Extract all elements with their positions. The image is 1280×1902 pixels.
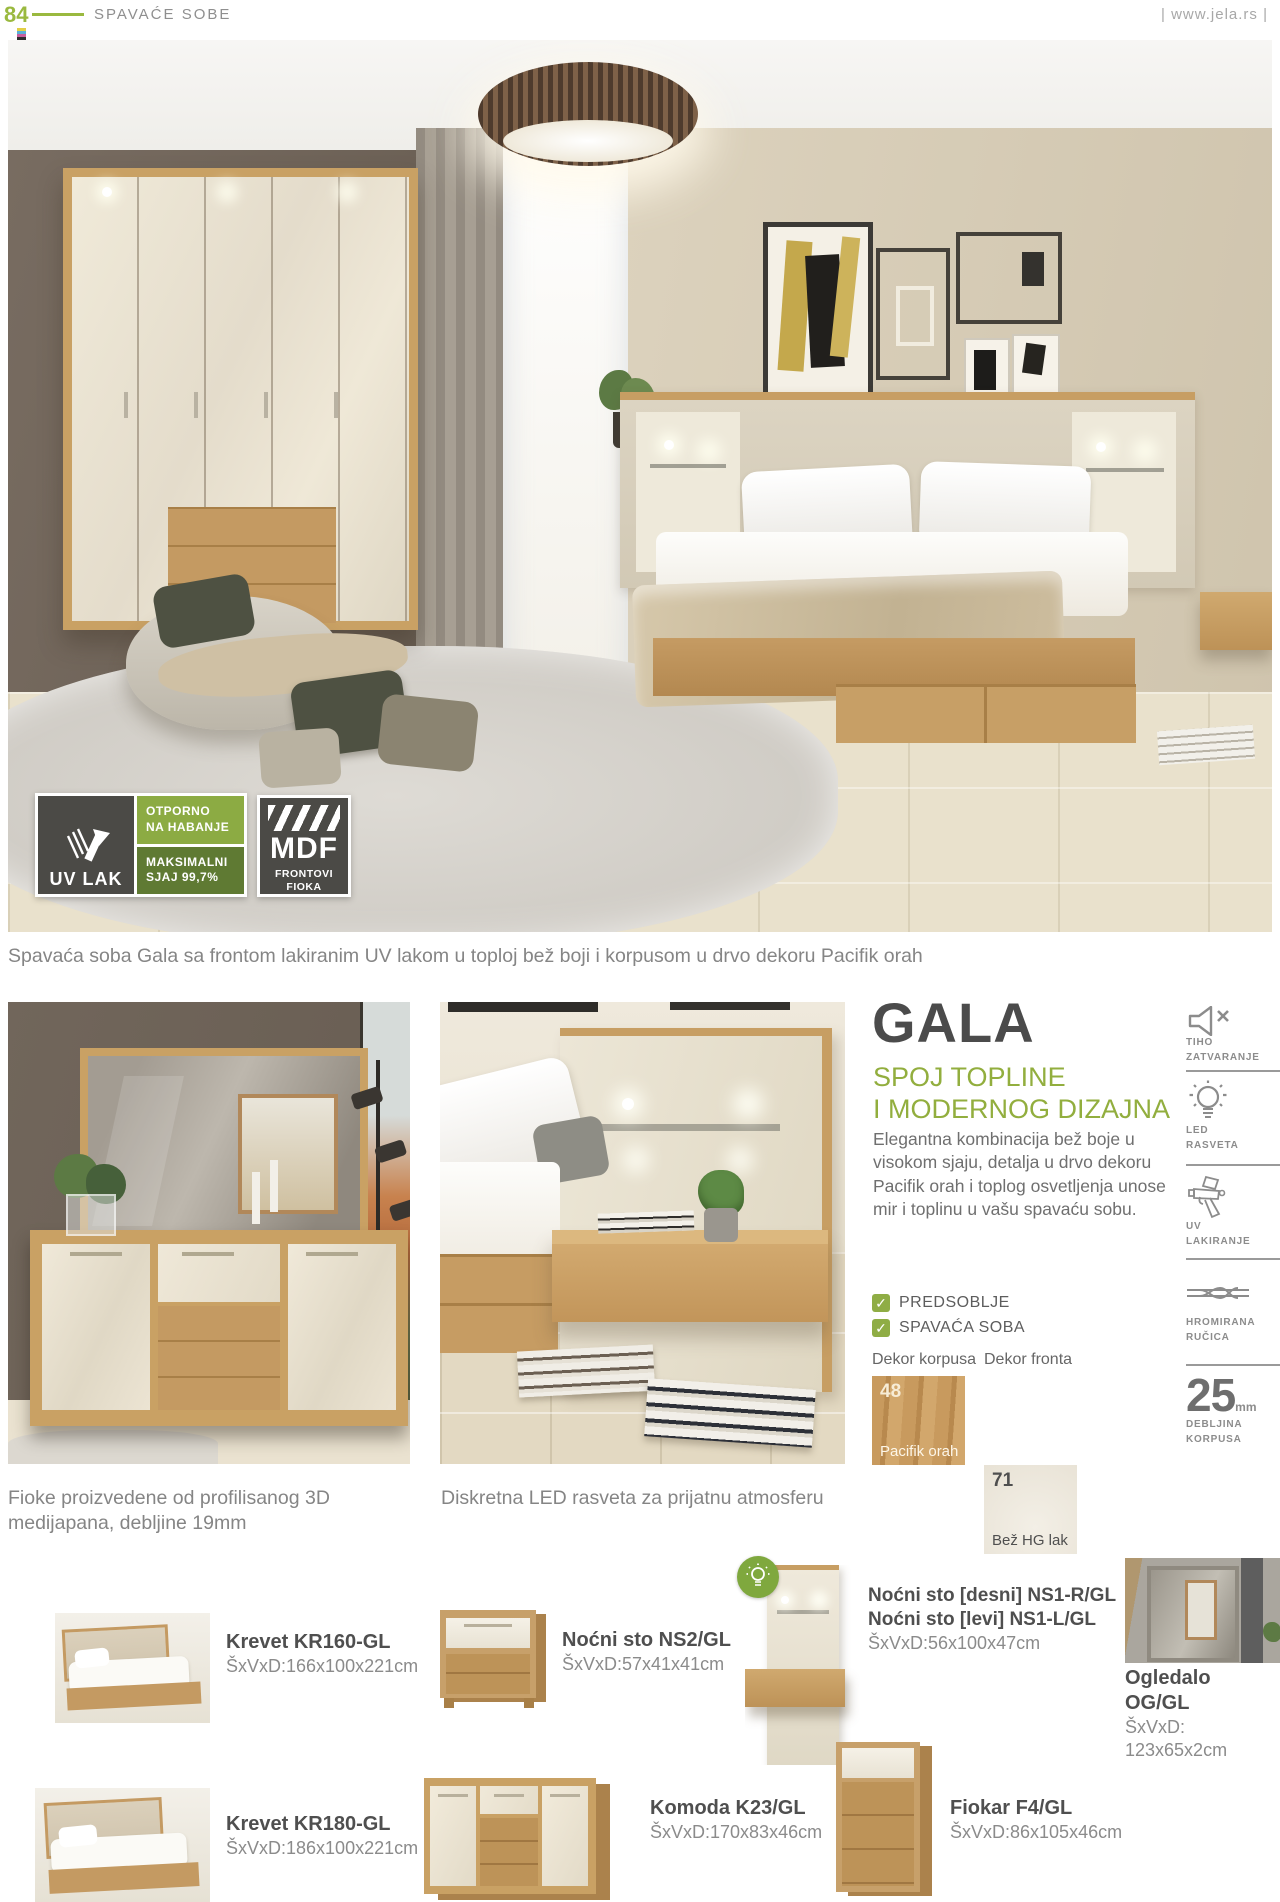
led-bulb-icon — [1186, 1080, 1230, 1124]
product-name-2: Noćni sto [levi] NS1-L/GL — [868, 1608, 1116, 1632]
photo2-magazine-stack2 — [644, 1378, 816, 1448]
photo2-magazine-stack1 — [517, 1344, 655, 1397]
thumb-komoda-body — [424, 1778, 596, 1894]
feature-rail: TIHO ZATVARANJE LED RASVETA UV LAKIRANJE — [1186, 1006, 1280, 1472]
magazine-stack-hero — [1157, 725, 1255, 766]
sideboard-door-right — [288, 1244, 396, 1410]
product-nocni-sto-ns1: Noćni sto [desni] NS1-R/GL Noćni sto [le… — [868, 1584, 1116, 1655]
feature-tiho-zatvaranje: TIHO ZATVARANJE — [1186, 1006, 1280, 1070]
thumb-mirror-reflection — [1185, 1580, 1217, 1640]
product-komoda-k23: Komoda K23/GL ŠxVxD:170x83x46cm — [650, 1796, 822, 1844]
hero-caption: Spavaća soba Gala sa frontom lakiranim U… — [8, 944, 1008, 969]
thumb-komoda-wood-drawers — [480, 1818, 538, 1886]
mirror — [80, 1048, 368, 1254]
uv-lak-badge-title: UV LAK — [50, 870, 123, 888]
product-photo-komoda-k23 — [420, 1772, 616, 1902]
floating-nightstand — [1200, 592, 1272, 650]
header-rule — [32, 13, 84, 16]
product-ogledalo: Ogledalo OG/GL ŠxVxD: 123x65x2cm — [1125, 1666, 1280, 1763]
thumb-mirror-plant — [1263, 1622, 1280, 1642]
product-dims: ŠxVxD:56x100x47cm — [868, 1632, 1116, 1655]
caption-fioke: Fioke proizvedene od profilisanog 3D med… — [8, 1486, 428, 1537]
photo-bed-led-closeup — [440, 1002, 845, 1464]
decor-name: Bež HG lak — [992, 1533, 1068, 1548]
sideboard-drawer-seam1 — [158, 1340, 280, 1342]
wardrobe-lights — [102, 187, 112, 197]
wardrobe-doors — [72, 177, 409, 621]
product-name: Krevet KR180-GL — [226, 1812, 418, 1837]
photo1-rug — [8, 1430, 218, 1464]
sideboard-handles — [70, 1252, 122, 1256]
caption-led: Diskretna LED rasveta za prijatnu atmosf… — [441, 1486, 861, 1511]
product-photo-krevet-kr180 — [35, 1788, 210, 1902]
decor-heading-front: Dekor fronta — [984, 1352, 1072, 1368]
headboard-shelf-right — [1086, 468, 1164, 472]
headboard-led-left — [664, 440, 674, 450]
thumb-komoda-seams — [480, 1840, 538, 1842]
decor-swatch-pacifik-orah: 48 Pacifik orah — [872, 1376, 965, 1465]
sideboard-drawer-seam2 — [158, 1376, 280, 1378]
product-name: Noćni sto [desni] NS1-R/GL — [868, 1584, 1116, 1608]
product-name: Komoda K23/GL — [650, 1796, 822, 1821]
product-fiokar-f4: Fiokar F4/GL ŠxVxD:86x105x46cm — [950, 1796, 1122, 1844]
sideboard-wood-drawers — [158, 1306, 280, 1410]
sideboard — [30, 1230, 408, 1426]
decor-swatch-bez-hg-lak: 71 Bež HG lak — [984, 1465, 1077, 1554]
section-title: SPAVAĆE SOBE — [94, 7, 231, 22]
thumb-komoda-door-left — [430, 1786, 476, 1886]
thumb-komoda-handles — [438, 1794, 468, 1797]
ceiling-lamp — [478, 62, 698, 166]
product-name: Fiokar F4/GL — [950, 1796, 1122, 1821]
thumb-ns2-seam — [446, 1672, 530, 1674]
thumb-fiokar-top-drawer — [842, 1748, 914, 1778]
thumb-ns2-top-drawer — [446, 1618, 530, 1648]
product-dims: ŠxVxD:166x100x221cm — [226, 1655, 418, 1678]
art-inner-dark — [1022, 252, 1044, 286]
photo2-headboard-panel — [560, 1028, 832, 1392]
photo2-magazines-top — [598, 1210, 695, 1233]
thumb-ns1-drawer — [745, 1669, 845, 1707]
bed-underbed-drawers — [836, 684, 1136, 743]
wall-art-wide-frame — [956, 232, 1062, 324]
feature-hromirana-rucica: HROMIRANA RUČICA — [1186, 1260, 1280, 1364]
thumb-ns2-lower — [446, 1654, 530, 1694]
photo2-led-spots — [622, 1098, 634, 1110]
ledge-art-1-mark — [974, 350, 996, 390]
thumb-ns2-feet — [444, 1698, 454, 1708]
headboard-shelf-left — [650, 464, 726, 468]
mdf-badge-title: MDF — [270, 834, 338, 864]
product-photo-nocni-sto-ns2 — [434, 1604, 556, 1712]
thickness-icon: 25mm — [1186, 1372, 1280, 1418]
decor-code: 48 — [880, 1382, 901, 1401]
uv-lak-badge-right: OTPORNO NA HABANJE MAKSIMALNI SJAJ 99,7% — [134, 796, 244, 894]
led-feature-badge — [737, 1556, 779, 1598]
checkmark-icon: ✓ — [872, 1294, 890, 1312]
uv-lak-badge-left: UV LAK — [38, 796, 134, 894]
thumb-komoda-top-drawer — [480, 1786, 538, 1814]
photo1-candles — [252, 1172, 260, 1224]
thumb-ns1-shelf — [777, 1610, 829, 1614]
thumb-fiokar-seams — [842, 1814, 914, 1816]
catalog-page: 84 SPAVAĆE SOBE | www.jela.rs | — [0, 0, 1280, 1902]
product-photo-krevet-kr160 — [55, 1613, 210, 1723]
wall-art-large — [763, 222, 873, 400]
spray-gun-icon — [1186, 1174, 1232, 1220]
ledge-art-2-mark — [1022, 343, 1046, 375]
uv-lak-badge: UV LAK OTPORNO NA HABANJE MAKSIMALNI SJA… — [35, 793, 247, 897]
photo2-plant-pot — [704, 1208, 738, 1242]
thumb-komoda-door-right — [542, 1786, 588, 1886]
photo2-floating-nightstand — [552, 1230, 828, 1322]
headboard-led-right — [1096, 442, 1106, 452]
thumb-mirror-glass — [1147, 1566, 1239, 1662]
product-name: Ogledalo OG/GL — [1125, 1666, 1280, 1716]
uv-arrow-icon — [60, 820, 112, 866]
thumb-mirror-curtain — [1241, 1558, 1263, 1663]
decor-code: 71 — [992, 1471, 1013, 1490]
mdf-badge-subtitle: FRONTOVI FIOKA — [275, 868, 333, 894]
website-url: | www.jela.rs | — [1161, 7, 1268, 22]
underbed-drawer-seam — [984, 687, 987, 743]
photo-sideboard-mirror — [8, 1002, 410, 1464]
product-name: Krevet KR160-GL — [226, 1630, 418, 1655]
mdf-badge: MDF FRONTOVI FIOKA — [257, 795, 351, 897]
product-photo-ogledalo — [1125, 1558, 1280, 1663]
category-label: PREDSOBLJE — [899, 1295, 1010, 1311]
thumb-bed-pillow — [74, 1647, 110, 1668]
feature-led-rasveta: LED RASVETA — [1186, 1072, 1280, 1164]
decor-name: Pacifik orah — [880, 1444, 958, 1459]
product-krevet-kr160: Krevet KR160-GL ŠxVxD:166x100x221cm — [226, 1630, 418, 1678]
category-label: SPAVAĆA SOBA — [899, 1320, 1025, 1336]
photo2-bed-drawer-seam — [440, 1303, 558, 1306]
photo1-glass-vase — [66, 1194, 116, 1236]
photo2-bed-rail — [440, 1254, 558, 1353]
thumb-fiokar-wood-drawers — [842, 1782, 914, 1886]
product-dims: ŠxVxD:86x105x46cm — [950, 1821, 1122, 1844]
thumb-bed-pillow — [58, 1824, 98, 1848]
product-line-description: Elegantna kombinacija bež boje u visokom… — [873, 1128, 1175, 1222]
sideboard-door-left — [42, 1244, 150, 1410]
wall-art-thin-frame — [876, 248, 950, 380]
uv-badge-line1: OTPORNO NA HABANJE — [137, 796, 244, 844]
thumb-fiokar-body — [836, 1742, 920, 1892]
photo2-nightstand-top — [552, 1230, 828, 1244]
product-photo-fiokar-f4 — [832, 1738, 942, 1900]
thumb-ns2-body — [440, 1610, 536, 1698]
product-name: Noćni sto NS2/GL — [562, 1628, 731, 1653]
chrome-handle-icon — [1186, 1282, 1250, 1304]
wardrobe-handles — [124, 392, 128, 418]
product-dims: ŠxVxD:186x100x221cm — [226, 1837, 418, 1860]
category-row-predsoblje: ✓ PREDSOBLJE — [872, 1294, 1010, 1312]
page-number: 84 — [4, 4, 28, 27]
speaker-mute-icon — [1186, 1006, 1232, 1036]
decor-heading-korpus: Dekor korpusa — [872, 1352, 976, 1368]
wardrobe — [63, 168, 418, 630]
led-bulb-badge-icon — [745, 1563, 771, 1591]
hero-photo-bedroom: UV LAK OTPORNO NA HABANJE MAKSIMALNI SJA… — [8, 40, 1272, 932]
feature-uv-lakiranje: UV LAKIRANJE — [1186, 1166, 1280, 1258]
product-krevet-kr180: Krevet KR180-GL ŠxVxD:186x100x221cm — [226, 1812, 418, 1860]
wardrobe-drawer-seam — [168, 545, 336, 547]
photo2-frame-bottom2 — [670, 1002, 790, 1010]
product-dims: ŠxVxD: 123x65x2cm — [1125, 1716, 1280, 1763]
uv-badge-line2: MAKSIMALNI SJAJ 99,7% — [137, 844, 244, 895]
product-dims: ŠxVxD:57x41x41cm — [562, 1653, 731, 1676]
thumb-ns2-handle — [464, 1624, 512, 1627]
art-inner-frame — [896, 286, 934, 346]
thumb-ns1-panel — [767, 1565, 839, 1765]
photo2-frame-bottom1 — [448, 1002, 598, 1012]
category-row-spavaca-soba: ✓ SPAVAĆA SOBA — [872, 1319, 1025, 1337]
rug-pillow-light — [258, 727, 342, 788]
mdf-stripes — [268, 805, 340, 831]
thumb-ns1-led — [781, 1596, 789, 1604]
product-dims: ŠxVxD:170x83x46cm — [650, 1821, 822, 1844]
print-registration-mark — [17, 28, 26, 40]
hero-curtain — [416, 128, 516, 728]
product-line-title: GALA — [872, 995, 1035, 1051]
feature-debljina-korpusa: 25mm DEBLJINA KORPUSA — [1186, 1366, 1280, 1472]
ceiling-lamp-glow — [503, 120, 673, 162]
checkmark-icon: ✓ — [872, 1319, 890, 1337]
photo2-glass-shelf — [600, 1124, 780, 1131]
product-line-subtitle: SPOJ TOPLINE I MODERNOG DIZAJNA — [873, 1062, 1170, 1126]
sideboard-top-drawer — [158, 1244, 280, 1302]
product-nocni-sto-ns2: Noćni sto NS2/GL ŠxVxD:57x41x41cm — [562, 1628, 731, 1676]
rug-pillow-taupe — [377, 693, 480, 773]
